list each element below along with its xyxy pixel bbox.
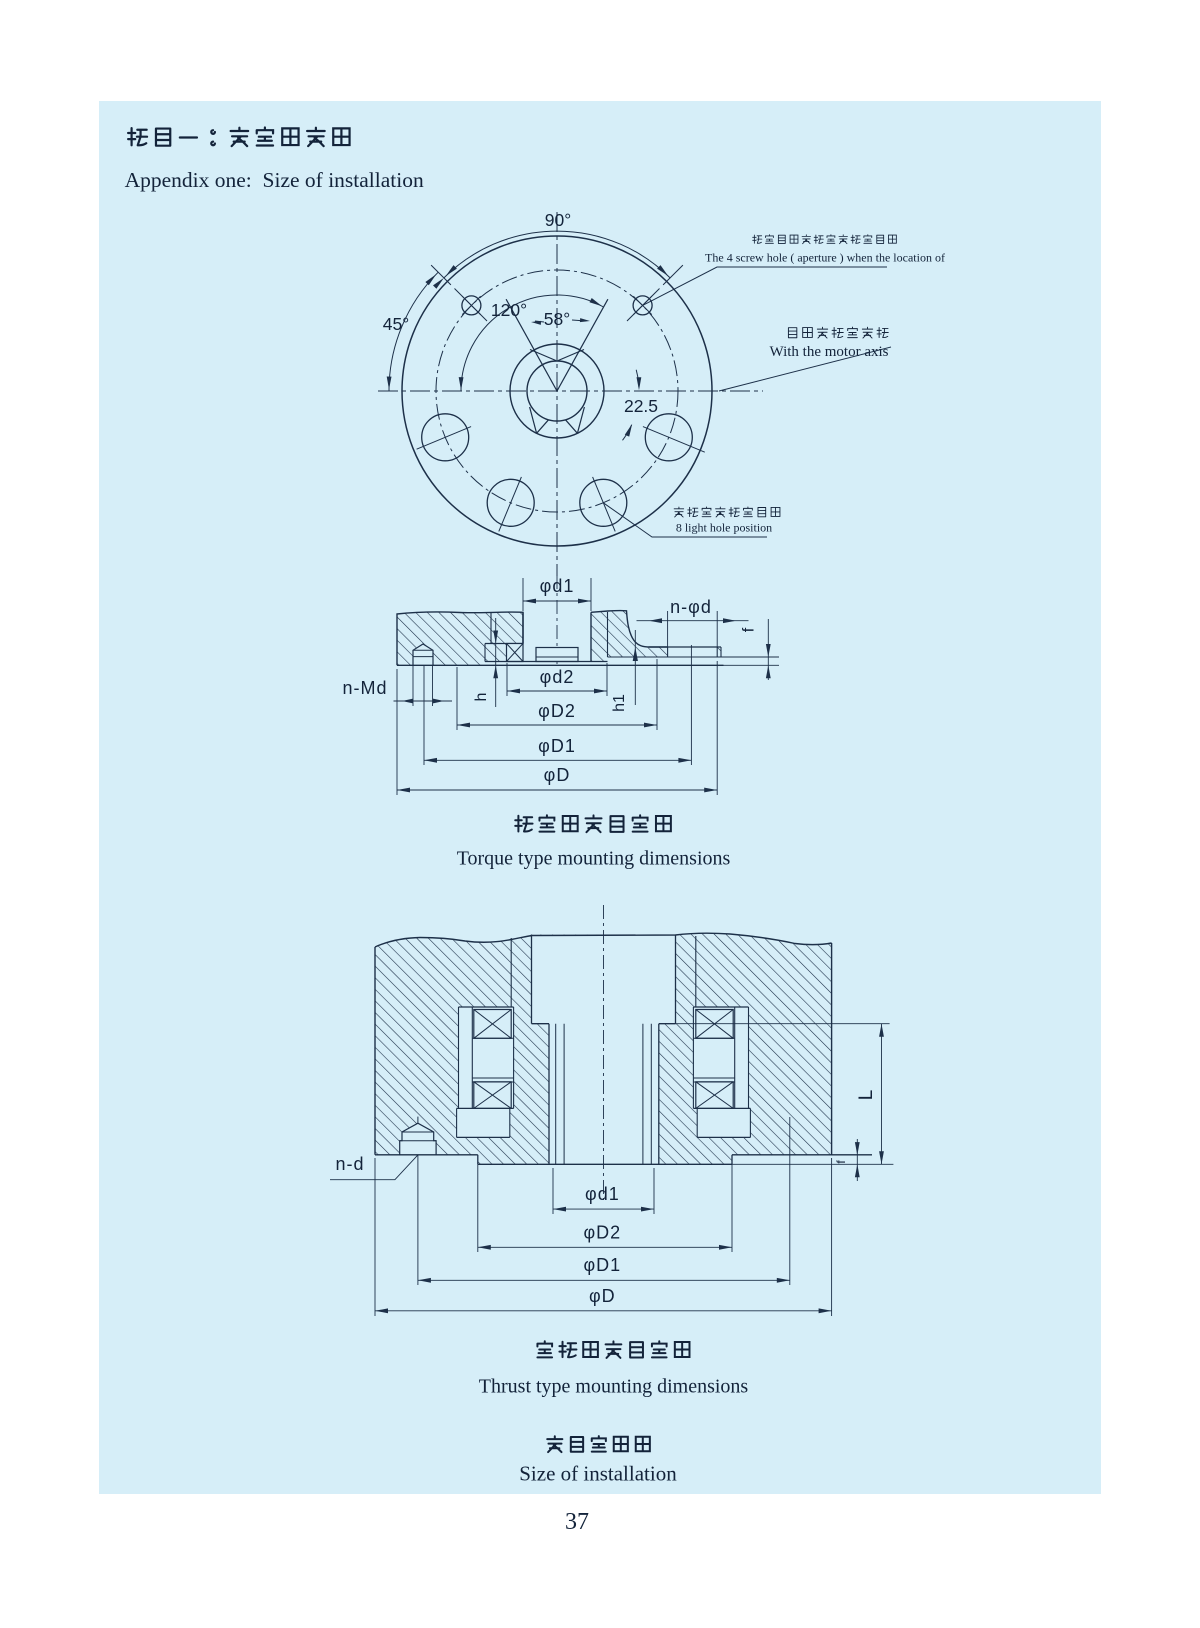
svg-text:φD2: φD2 xyxy=(583,1223,621,1243)
svg-text:37: 37 xyxy=(565,1509,589,1535)
svg-text:Appendix one: Size of install: Appendix one: Size of installation xyxy=(125,168,424,192)
svg-text:Size of installation: Size of installation xyxy=(519,1462,677,1486)
svg-text:58°: 58° xyxy=(544,309,570,329)
svg-text:n-φd: n-φd xyxy=(670,597,712,617)
svg-text:45°: 45° xyxy=(383,314,409,334)
svg-text:90°: 90° xyxy=(545,210,571,230)
svg-text:h: h xyxy=(473,693,490,702)
svg-text:φD1: φD1 xyxy=(583,1255,621,1275)
svg-text:The 4 screw hole ( aperture ): The 4 screw hole ( aperture ) when the l… xyxy=(705,251,945,265)
svg-text:n-d: n-d xyxy=(335,1154,364,1174)
svg-text:φD: φD xyxy=(589,1286,616,1306)
svg-text:φD1: φD1 xyxy=(538,736,576,756)
svg-text:L: L xyxy=(856,1090,877,1101)
svg-text:φD2: φD2 xyxy=(538,701,576,721)
svg-text:φd1: φd1 xyxy=(585,1184,620,1204)
svg-text:8 light hole position: 8 light hole position xyxy=(676,521,772,535)
svg-text:120°: 120° xyxy=(491,300,527,320)
svg-text:φd1: φd1 xyxy=(540,576,575,596)
svg-text:φD: φD xyxy=(544,765,571,785)
svg-text:n-Md: n-Md xyxy=(342,678,387,698)
svg-text:h1: h1 xyxy=(611,694,628,712)
svg-text:Thrust type mounting dimension: Thrust type mounting dimensions xyxy=(479,1376,749,1398)
svg-text:22.5: 22.5 xyxy=(624,396,658,416)
svg-text:φd2: φd2 xyxy=(540,667,575,687)
svg-text:Torque type mounting dimension: Torque type mounting dimensions xyxy=(457,848,731,870)
svg-text:f: f xyxy=(741,627,758,632)
